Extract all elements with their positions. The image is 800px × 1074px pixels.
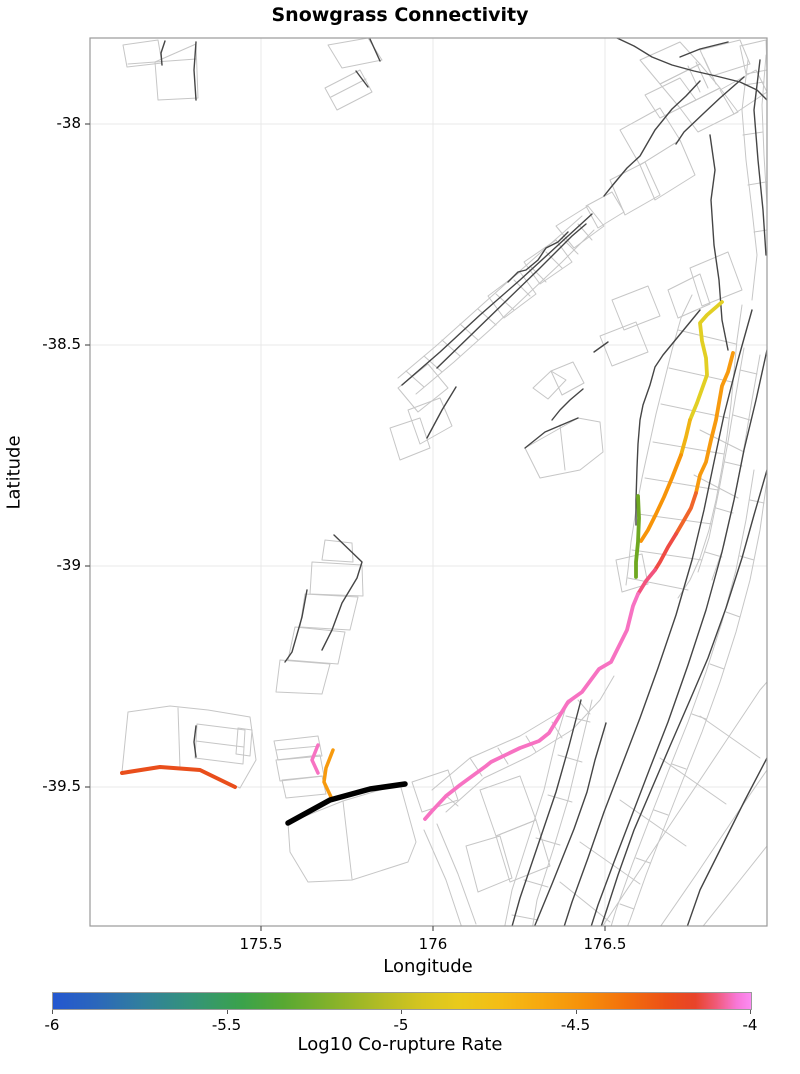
- y-tick-label: -39.5: [21, 777, 81, 795]
- fault-subsection-outline: [532, 700, 592, 930]
- colorbar-tick-label: -5.5: [197, 1016, 257, 1034]
- fault-subsection-outline: [578, 224, 592, 240]
- fault-subsection-outline: [612, 286, 660, 330]
- fault-subsection-outline: [178, 708, 180, 768]
- fault-subsection-outline: [300, 594, 358, 630]
- y-axis-label: Latitude: [4, 373, 25, 573]
- co-rupture-path-east-path-redorange: [676, 493, 696, 534]
- co-rupture-path-southwest-red-path: [122, 767, 235, 787]
- fault-subsection-outline: [478, 309, 496, 325]
- fault-subsection-outline: [390, 418, 430, 460]
- co-rupture-path-east-path-orange: [696, 353, 733, 493]
- fault-subsection-outline: [533, 371, 566, 399]
- fault-subsection-outline: [700, 846, 767, 930]
- fault-subsection-outline: [504, 700, 568, 930]
- colorbar-tick-label: -6: [22, 1016, 82, 1034]
- fault-subsection-outline: [480, 776, 536, 836]
- fault-trace: [686, 758, 767, 930]
- fault-subsection-outline: [325, 70, 372, 110]
- colorbar-tick-mark: [401, 1010, 402, 1014]
- colorbar-tick-label: -4.5: [546, 1016, 606, 1034]
- fault-trace: [552, 389, 583, 420]
- co-rupture-path-highlighted-black-fault: [288, 784, 405, 823]
- fault-subsection-outline: [600, 322, 648, 366]
- fault-subsection-outline: [620, 108, 680, 165]
- fault-subsection-outline: [725, 462, 742, 466]
- fault-subsection-outline: [525, 418, 603, 478]
- fault-subsection-outline: [398, 216, 582, 378]
- fault-subsection-outline: [626, 295, 692, 585]
- fault-subsection-outline: [276, 746, 320, 750]
- fault-subsection-outline: [700, 430, 744, 452]
- fault-subsection-outline: [322, 540, 353, 562]
- fault-subsection-outline: [560, 425, 565, 470]
- fault-subsection-outline: [580, 842, 640, 884]
- fault-subsection-outline: [628, 578, 688, 590]
- fault-subsection-outline: [416, 230, 594, 394]
- gridlines: [90, 38, 767, 926]
- x-tick-label: 176.5: [575, 935, 635, 953]
- fault-subsection-outline: [276, 660, 330, 694]
- fault-subsection-outline: [640, 42, 700, 84]
- fault-subsection-outline: [668, 274, 710, 318]
- fault-subsection-outline: [620, 904, 634, 909]
- fault-subsection-outline: [328, 38, 382, 68]
- fault-subsection-outline: [566, 716, 590, 722]
- x-tick-label: 175.5: [231, 935, 291, 953]
- co-rupture-path-west-path-yelloworange: [681, 420, 690, 455]
- fault-subsection-outline: [343, 801, 352, 879]
- map-canvas: [0, 0, 800, 1074]
- fault-subsection-outline: [610, 162, 660, 215]
- fault-subsection-outline: [716, 508, 733, 513]
- fault-trace: [402, 214, 592, 385]
- y-tick-label: -39: [21, 556, 81, 574]
- fault-trace: [590, 350, 767, 930]
- fault-subsection-outline: [424, 830, 462, 928]
- fault-subsection-outline: [742, 60, 757, 300]
- fault-subsection-outline: [710, 664, 724, 669]
- fault-subsection-outline: [653, 442, 724, 454]
- colorbar-tick-mark: [750, 1010, 751, 1014]
- fault-trace: [437, 224, 586, 368]
- y-tick-label: -38: [21, 114, 81, 132]
- fault-subsection-outline: [678, 330, 736, 344]
- fault-subsection-outline: [466, 836, 512, 892]
- colorbar-tick-mark: [227, 1010, 228, 1014]
- fault-subsection-outline: [712, 355, 760, 580]
- colorbar-gradient: [52, 992, 752, 1010]
- fault-subsection-outline: [122, 706, 256, 788]
- fault-trace: [563, 310, 752, 930]
- fault-trace: [322, 535, 362, 650]
- fault-subsection-outline: [660, 758, 726, 804]
- co-rupture-path-small-pink-path: [312, 745, 318, 773]
- fault-subsection-outline: [700, 716, 760, 758]
- co-rupture-path-east-path-pink: [425, 594, 638, 819]
- fault-trace: [710, 135, 728, 350]
- x-tick-label: 176: [403, 935, 463, 953]
- co-rupture-path-west-path-orange: [641, 455, 681, 541]
- fault-subsection-outline: [654, 810, 668, 815]
- fault-subsection-outline: [705, 552, 722, 557]
- fault-subsection-outline: [733, 415, 750, 420]
- fault-subsection-outline: [740, 40, 767, 74]
- fault-subsection-outline: [524, 880, 548, 887]
- colorbar-tick-label: -5: [371, 1016, 431, 1034]
- fault-subsection-outline: [726, 612, 740, 617]
- fault-subsection-outline: [620, 800, 686, 846]
- colorbar-tick-mark: [52, 1010, 53, 1014]
- x-axis-label: Longitude: [228, 956, 628, 977]
- fault-subsection-outline: [740, 370, 757, 374]
- plot-border: [90, 38, 767, 926]
- fault-trace: [194, 42, 196, 100]
- fault-subsection-outline: [288, 627, 345, 664]
- fault-subsection-outline: [288, 784, 416, 882]
- co-rupture-path-east-path-crimson: [638, 570, 655, 594]
- tick-marks: [85, 124, 605, 931]
- fault-subsection-outline: [645, 478, 718, 490]
- colorbar-tick-mark: [576, 1010, 577, 1014]
- colorbar-label: Log10 Co-rupture Rate: [200, 1034, 600, 1055]
- fault-subsection-outline: [743, 132, 763, 135]
- fault-trace: [370, 39, 380, 61]
- fault-trace: [604, 81, 700, 196]
- co-rupture-path-east-path-red: [655, 534, 676, 570]
- fault-subsection-outline: [748, 182, 766, 185]
- fault-subsection-outline: [310, 562, 363, 596]
- figure: Snowgrass Connectivity 175.5176176.5-38-…: [0, 0, 800, 1074]
- fault-subsection-outline: [680, 88, 738, 132]
- fault-trace: [427, 387, 456, 438]
- colorbar-tick-label: -4: [720, 1016, 780, 1034]
- y-tick-label: -38.5: [21, 335, 81, 353]
